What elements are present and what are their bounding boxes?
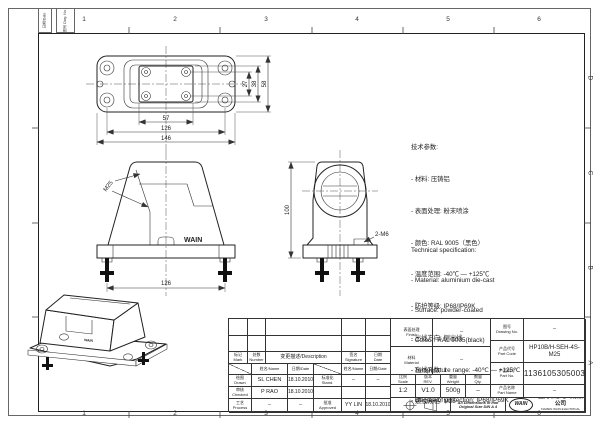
revision-cell	[366, 319, 391, 336]
subheader-date: 日期/Date	[288, 364, 314, 375]
revision-cell	[342, 336, 366, 352]
callout-2-m6: 2-M6	[375, 232, 389, 238]
checked-date: 18.10.2010	[288, 387, 314, 399]
dim-126: 126	[161, 126, 172, 132]
drawn-label: 绘图 Drawn	[229, 375, 252, 387]
rev-label: 版本 REV.	[416, 375, 441, 385]
finish-value: –	[433, 319, 491, 347]
diagonal-cell	[229, 364, 252, 375]
spec-cn-line: - 材料: 压铸铝	[411, 175, 489, 186]
revision-cell	[266, 336, 342, 352]
spec-en-line: - Material: aluminium die-cast	[411, 276, 520, 286]
header-description: 变更描述/Description	[266, 352, 342, 364]
front-view: M25 WAIN 126	[97, 152, 235, 296]
standard-label: 标准化 Stand.	[314, 375, 342, 387]
company-name-english: XIAMEN WAIN ELECTRICAL CO.,LTD	[536, 408, 585, 413]
spec-cn-line: 技术参数:	[411, 143, 489, 154]
spec-en-line: - Surface: powder-coated	[411, 306, 520, 316]
drawing-no-value: –	[524, 319, 586, 341]
weight-label: 重量 Weight	[441, 375, 466, 385]
header-date: 日期 Date	[366, 352, 391, 364]
thread-callout-m25: M25	[103, 180, 115, 193]
revision-cell	[248, 319, 266, 336]
projection-symbol-cone-icon	[423, 399, 438, 412]
material-label: 材料 Material	[391, 347, 433, 375]
dim-57: 57	[163, 116, 170, 122]
checked-name: P RAO	[252, 387, 288, 399]
dim-146: 146	[161, 136, 172, 142]
revision-cell	[229, 336, 248, 352]
revision-cell	[366, 336, 391, 352]
drawing-no-label: 图号 Drawing No.	[491, 319, 524, 341]
drawn-name: SL CHEN	[252, 375, 288, 387]
dim-58: 58	[262, 80, 268, 87]
dim-38: 38	[252, 80, 258, 87]
approved-name: YY LIN	[342, 399, 366, 413]
top-view: 57 126 146 27 38 58	[86, 46, 271, 152]
empty-cell	[366, 387, 391, 399]
approved-label: 批准 Approved	[314, 399, 342, 413]
part-code-value: HP10B/H-SEH-4S-M25	[524, 341, 586, 363]
subheader-name: 姓名/Name	[252, 364, 288, 375]
spec-cn-line: - 表面处理: 粉末喷涂	[411, 207, 489, 218]
dim-126-front: 126	[161, 281, 172, 287]
rev-value: V1.0	[416, 385, 441, 398]
revision-cell	[342, 319, 366, 336]
dim-100: 100	[285, 204, 291, 215]
projection-symbol-circle-icon	[403, 399, 417, 412]
title-block: 标记 Mark 处数 Number 变更描述/Description 签名 Si…	[228, 318, 585, 412]
qty-label: 数量 Qty.	[466, 375, 491, 385]
drawing-sheet: 日期/Date 图号 Dwg. No. 1 2 3 4 5 6 1 2 3 4 …	[0, 0, 600, 424]
dimensions-note: All Dimensions in mm Original Size DIN A…	[451, 398, 506, 413]
part-no-label: 产品料号 Part No.	[491, 363, 524, 385]
standard-name: –	[342, 375, 366, 387]
part-code-label: 产品代号 Part Code	[491, 341, 524, 363]
process-label: 工艺 Process	[229, 399, 252, 413]
subheader-date: 日期/Date	[366, 364, 391, 375]
revision-cell	[266, 319, 342, 336]
header-signature: 签名 Signature	[342, 352, 366, 364]
company-cell: WAIN 厦门唯恩电气有限公司 XIAMEN WAIN ELECTRICAL C…	[506, 398, 586, 413]
scale-label: 比例 Scale	[391, 375, 416, 385]
process-date: –	[288, 399, 314, 413]
diagonal-cell	[314, 364, 342, 375]
part-no-value: 1136105305003	[524, 363, 586, 385]
revision-cell	[248, 336, 266, 352]
header-number: 处数 Number	[248, 352, 266, 364]
standard-date: –	[366, 375, 391, 387]
brand-text-front: WAIN	[184, 237, 202, 244]
spec-en-line: Technical specification:	[411, 246, 520, 256]
drawn-date: 18.10.2010	[288, 375, 314, 387]
header-mark: 标记 Mark	[229, 352, 248, 364]
weight-value: 500g	[441, 385, 466, 398]
isometric-view: WAIN	[28, 295, 167, 370]
company-names: 厦门唯恩电气有限公司 XIAMEN WAIN ELECTRICAL CO.,LT…	[536, 398, 585, 413]
part-name-value: –	[524, 385, 586, 398]
dim-27: 27	[243, 80, 249, 87]
material-value: –	[433, 347, 491, 375]
empty-cell	[314, 387, 342, 399]
subheader-name: 姓名/Name	[342, 364, 366, 375]
qty-value: –	[466, 385, 491, 398]
side-view: 2-M6 100	[285, 150, 389, 296]
part-name-label: 产品名称 Part Name	[491, 385, 524, 398]
finish-label: 表面处理 Finish	[391, 319, 433, 347]
process-name: –	[252, 399, 288, 413]
revision-cell	[229, 319, 248, 336]
projection-symbols-cell	[391, 398, 451, 413]
empty-cell	[342, 387, 366, 399]
approved-date: 18.10.2010	[366, 399, 391, 413]
wain-logo: WAIN	[509, 398, 533, 412]
scale-value: 1:2	[391, 385, 416, 398]
checked-label: 审核 Checked	[229, 387, 252, 399]
